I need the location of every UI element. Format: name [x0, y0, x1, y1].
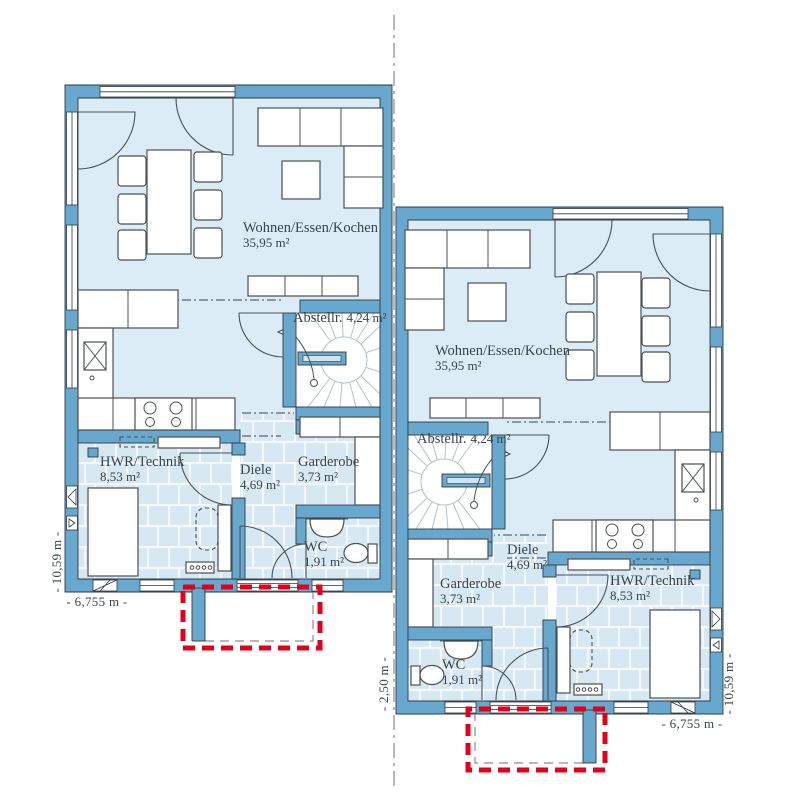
toilet: [344, 544, 368, 563]
wall-vent: [67, 516, 78, 530]
room-label-living-right: Wohnen/Essen/Kochen 35,95 m²: [435, 343, 570, 374]
entrance-porch: [183, 587, 320, 648]
washer: [88, 488, 138, 576]
room-label-utility-left: HWR/Technik 8,53 m²: [100, 454, 184, 485]
room-label-utility-right: HWR/Technik 8,53 m²: [610, 573, 694, 604]
room-label-wardrobe-left: Garderobe 3,73 m²: [298, 454, 359, 485]
coffee-table: [282, 161, 320, 199]
room-label-storage-left: Abstellr. 4,24 m²: [293, 309, 387, 327]
sideboard: [248, 276, 358, 296]
room-label-living-left: Wohnen/Essen/Kochen 35,95 m²: [243, 220, 378, 251]
room-label-hall-left: Diele 4,69 m²: [240, 462, 280, 493]
stove: [135, 398, 192, 430]
dimension-left-height: - 10,59 m -: [49, 531, 65, 592]
room-label-storage-right: Abstellr. 4,24 m²: [417, 430, 511, 448]
porch-pillar: [192, 588, 205, 641]
dimension-left-width: - 6,755 m -: [66, 594, 127, 610]
room-label-hall-right: Diele 4,69 m²: [507, 542, 547, 573]
room-label-wc-right: WC 1,91 m²: [442, 657, 482, 688]
floorplan-svg: [0, 0, 800, 800]
room-label-wardrobe-right: Garderobe 3,73 m²: [440, 576, 501, 607]
dimension-center-offset: - 2,50 m -: [376, 657, 392, 711]
room-label-wc-left: WC 1,91 m²: [304, 539, 344, 570]
floor-plan: Wohnen/Essen/Kochen 35,95 m² Abstellr. 4…: [0, 0, 800, 800]
dimension-right-height: - 10,59 m -: [721, 653, 737, 714]
dining-set: [118, 150, 222, 260]
shelf: [158, 437, 220, 448]
hall-floor: [240, 413, 296, 579]
dimension-right-width: - 6,755 m -: [661, 716, 722, 732]
